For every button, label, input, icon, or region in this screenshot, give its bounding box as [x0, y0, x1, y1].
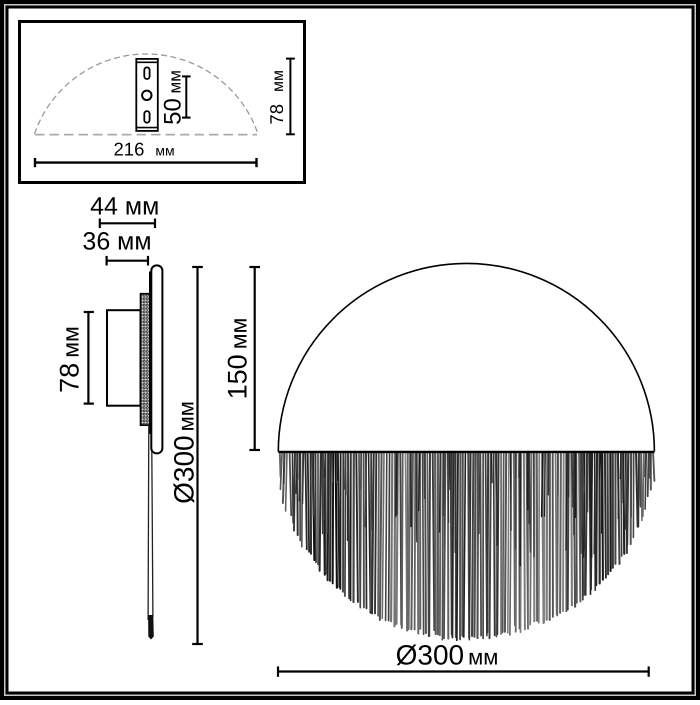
svg-text:36 мм: 36 мм [82, 227, 151, 255]
svg-text:Ø300мм: Ø300мм [169, 401, 200, 504]
svg-text:216мм: 216мм [114, 139, 175, 160]
svg-text:44 мм: 44 мм [90, 193, 159, 221]
svg-text:Ø300мм: Ø300мм [396, 640, 499, 671]
svg-text:150мм: 150мм [222, 318, 252, 400]
